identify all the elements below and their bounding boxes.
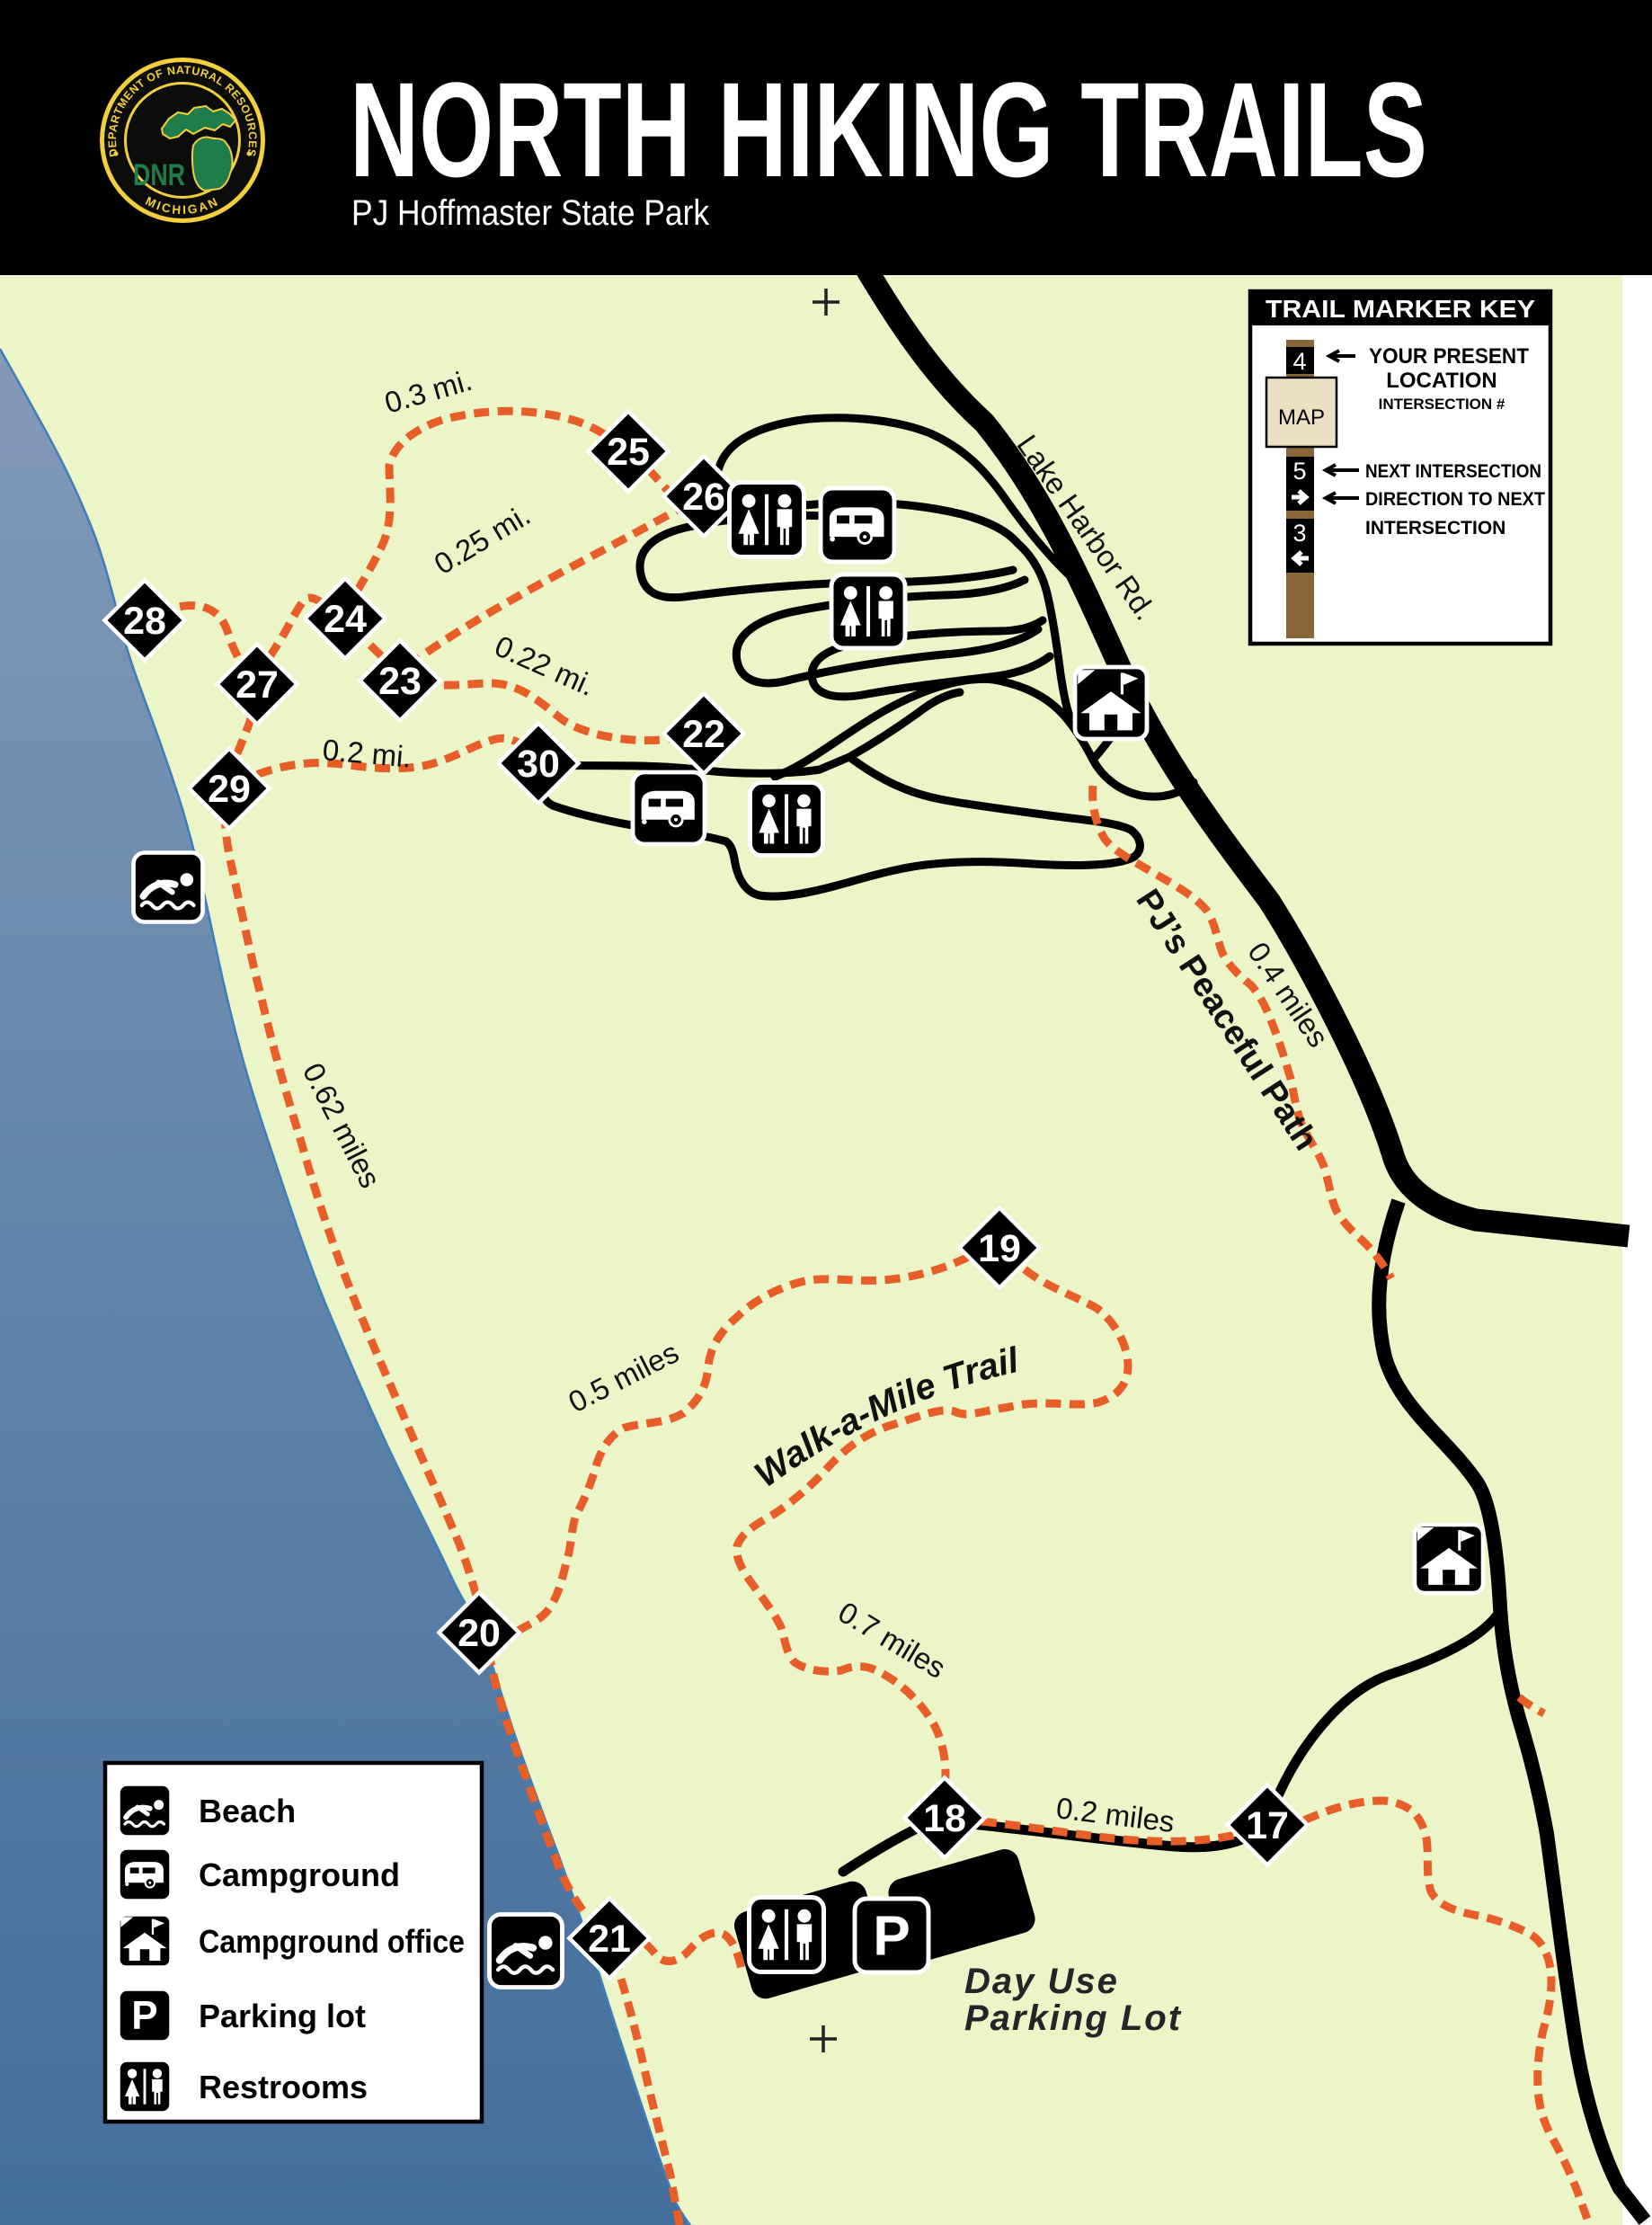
- svg-text:27: 27: [235, 663, 279, 707]
- svg-text:Campground office: Campground office: [199, 1923, 465, 1960]
- svg-text:INTERSECTION: INTERSECTION: [1365, 518, 1505, 538]
- svg-text:Beach: Beach: [199, 1793, 296, 1829]
- svg-text:25: 25: [607, 431, 650, 474]
- svg-text:20: 20: [457, 1612, 501, 1655]
- svg-text:4: 4: [1292, 348, 1306, 375]
- svg-text:NORTH HIKING TRAILS: NORTH HIKING TRAILS: [350, 54, 1427, 205]
- svg-text:28: 28: [123, 600, 166, 643]
- svg-text:DIRECTION TO NEXT: DIRECTION TO NEXT: [1365, 489, 1545, 510]
- svg-text:Parking Lot: Parking Lot: [964, 1998, 1182, 2038]
- svg-text:TRAIL MARKER KEY: TRAIL MARKER KEY: [1266, 295, 1535, 323]
- svg-text:3: 3: [1292, 520, 1306, 547]
- svg-text:29: 29: [208, 768, 251, 811]
- svg-text:PJ Hoffmaster State Park: PJ Hoffmaster State Park: [351, 193, 710, 233]
- svg-text:17: 17: [1246, 1804, 1289, 1847]
- svg-text:NEXT INTERSECTION: NEXT INTERSECTION: [1365, 461, 1541, 482]
- svg-text:18: 18: [923, 1797, 966, 1840]
- svg-text:Day Use: Day Use: [964, 1962, 1119, 2001]
- svg-text:30: 30: [517, 743, 560, 786]
- svg-text:5: 5: [1292, 458, 1306, 485]
- svg-text:Campground: Campground: [199, 1856, 400, 1893]
- svg-text:19: 19: [978, 1227, 1021, 1270]
- svg-text:INTERSECTION #: INTERSECTION #: [1379, 396, 1505, 413]
- svg-text:23: 23: [378, 660, 422, 703]
- svg-text:24: 24: [324, 598, 367, 641]
- svg-text:Restrooms: Restrooms: [199, 2069, 368, 2105]
- svg-text:LOCATION: LOCATION: [1386, 369, 1497, 393]
- svg-text:DNR: DNR: [133, 158, 185, 192]
- svg-text:22: 22: [682, 713, 725, 756]
- svg-text:YOUR PRESENT: YOUR PRESENT: [1369, 344, 1529, 369]
- svg-text:26: 26: [682, 476, 725, 519]
- svg-text:MAP: MAP: [1278, 405, 1325, 430]
- svg-text:21: 21: [588, 1918, 631, 1961]
- svg-text:Parking lot: Parking lot: [199, 1998, 366, 2034]
